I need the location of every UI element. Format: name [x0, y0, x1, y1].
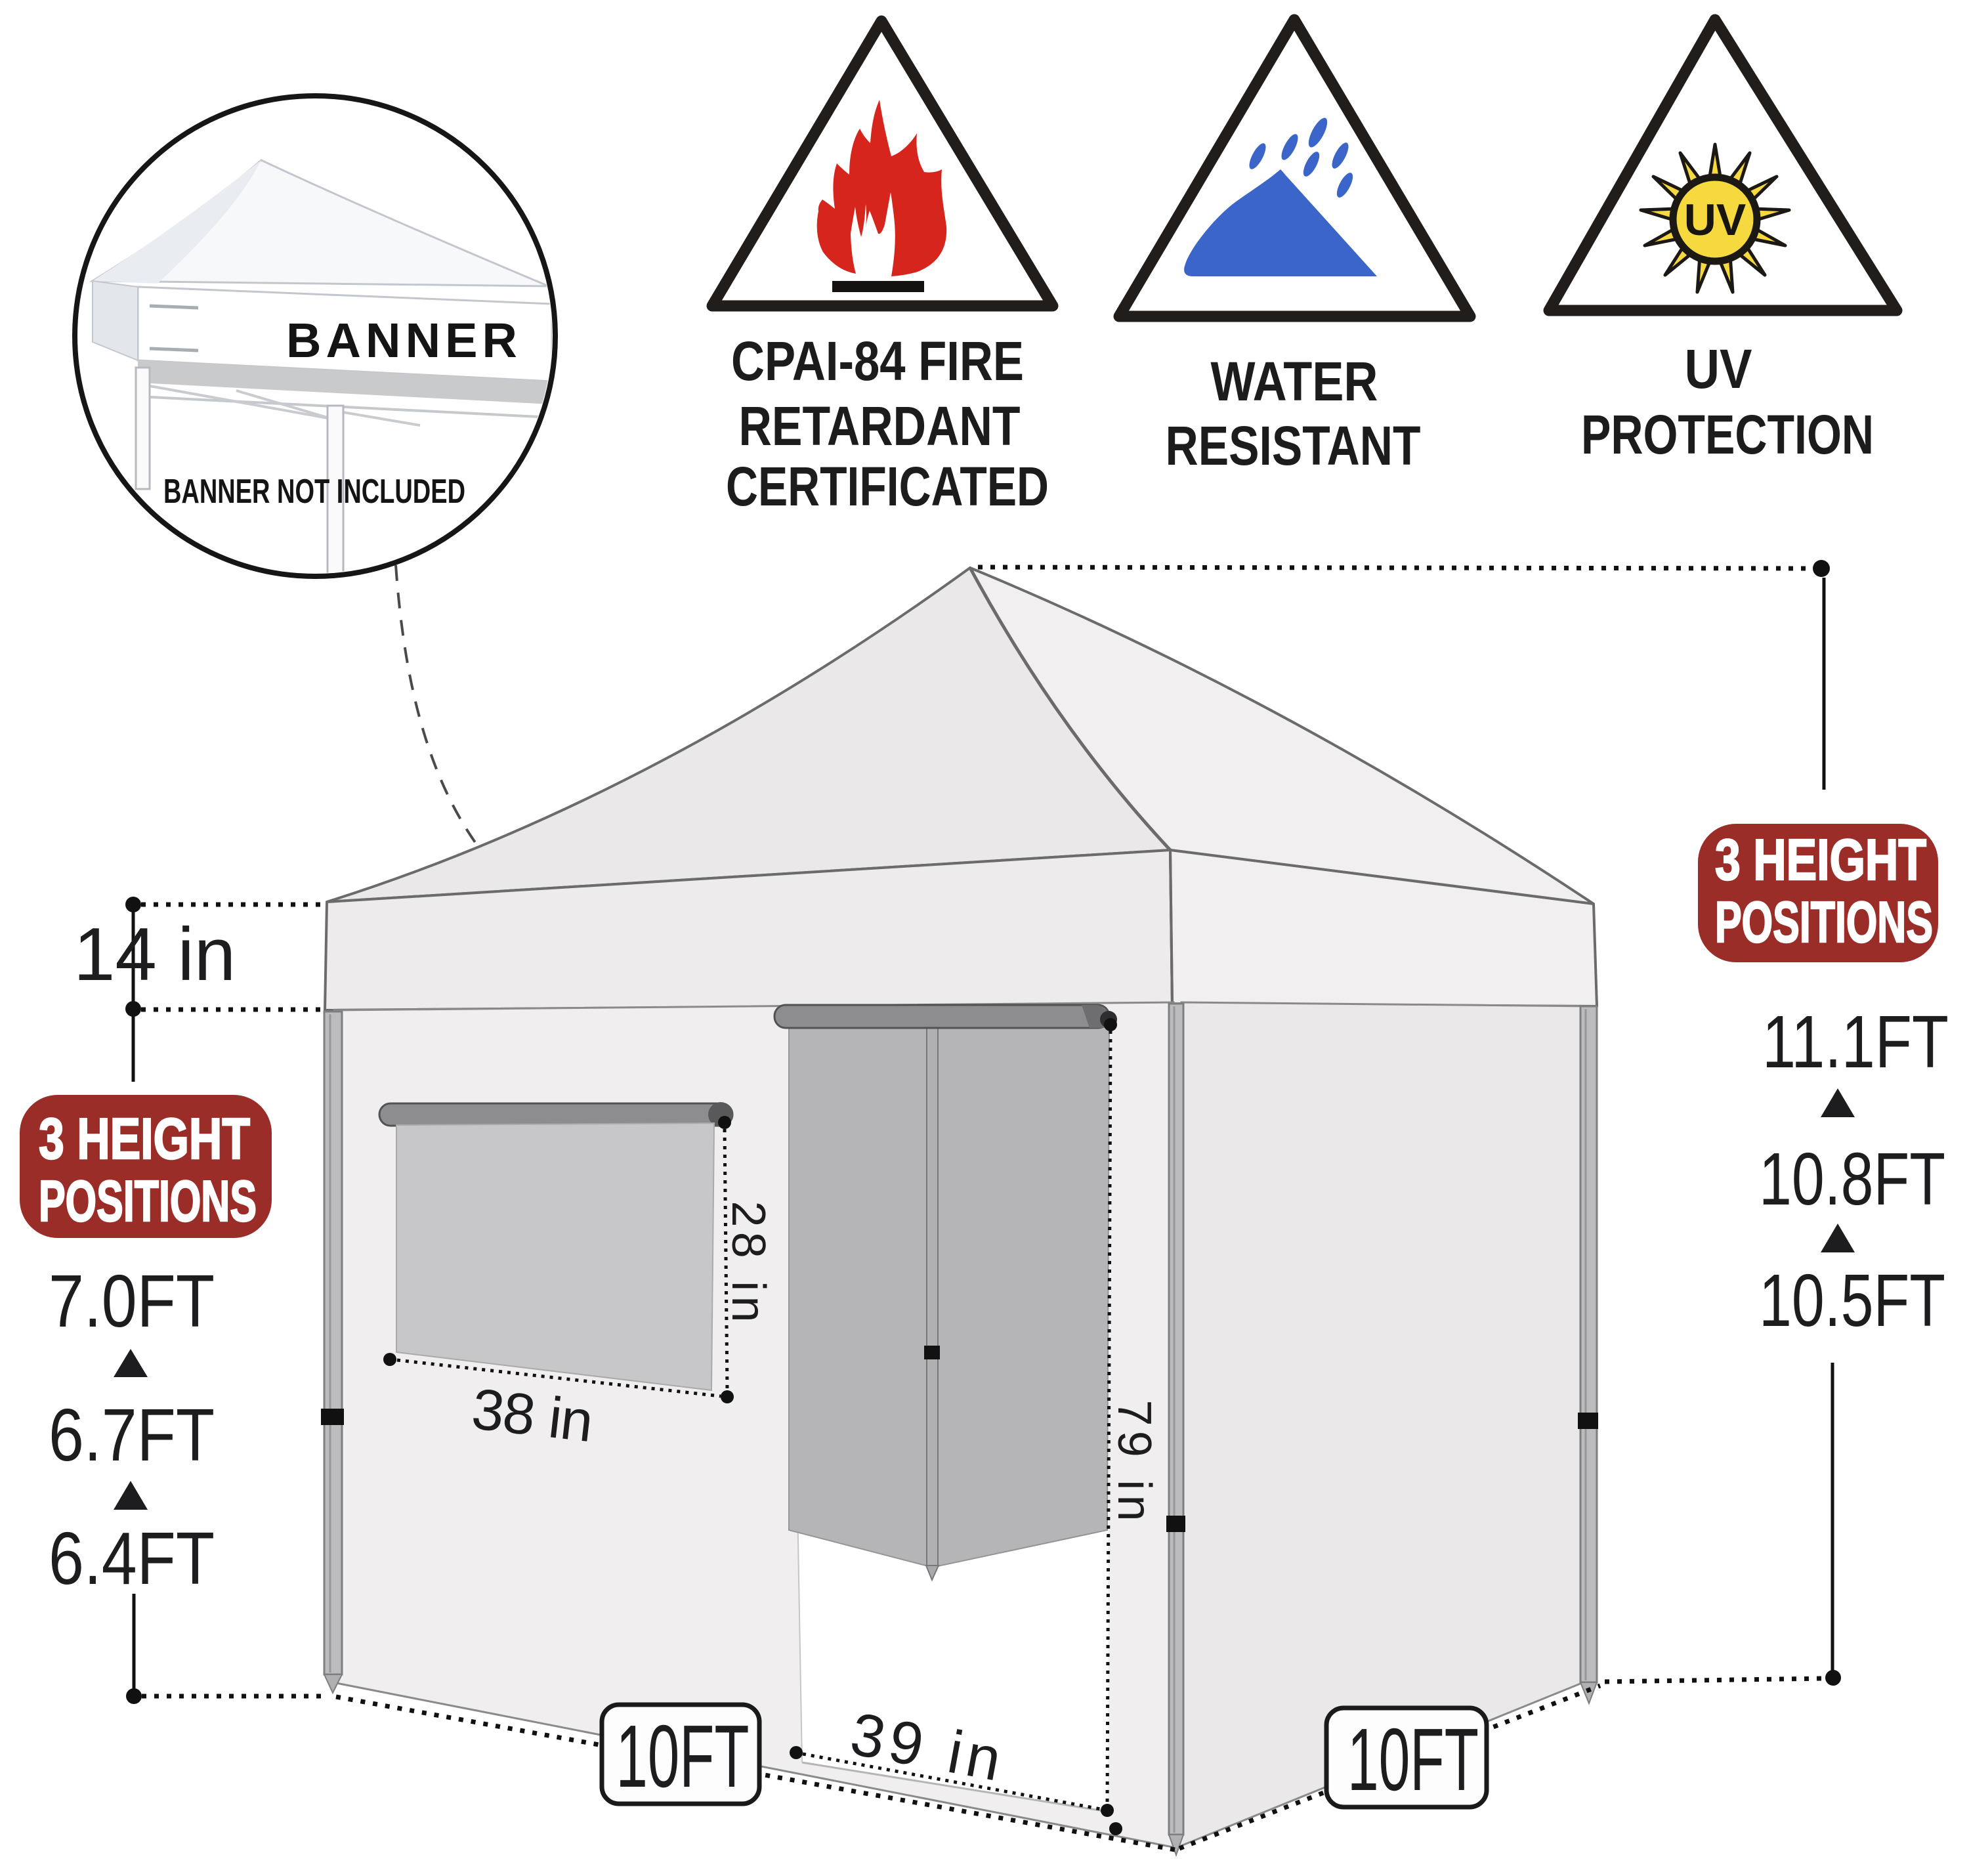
svg-text:10.8FT: 10.8FT — [1759, 1138, 1945, 1220]
svg-text:11.1FT: 11.1FT — [1762, 1000, 1949, 1083]
svg-text:UV: UV — [1685, 338, 1752, 400]
svg-text:CPAI-84 FIRE: CPAI-84 FIRE — [731, 330, 1024, 392]
svg-text:RESISTANT: RESISTANT — [1166, 415, 1421, 477]
svg-text:PROTECTION: PROTECTION — [1581, 404, 1874, 465]
svg-text:10.5FT: 10.5FT — [1759, 1259, 1945, 1342]
svg-text:10FT: 10FT — [616, 1707, 750, 1806]
svg-text:POSITIONS: POSITIONS — [1715, 889, 1933, 954]
svg-text:10FT: 10FT — [1347, 1710, 1479, 1809]
svg-text:POSITIONS: POSITIONS — [39, 1168, 257, 1233]
svg-text:BANNER NOT INCLUDED: BANNER NOT INCLUDED — [163, 473, 465, 511]
svg-text:38 in: 38 in — [469, 1376, 597, 1454]
svg-text:14 in: 14 in — [74, 913, 236, 996]
svg-text:RETARDANT: RETARDANT — [739, 395, 1021, 457]
svg-text:7.0FT: 7.0FT — [49, 1260, 215, 1342]
svg-text:6.7FT: 6.7FT — [49, 1394, 215, 1476]
svg-text:3 HEIGHT: 3 HEIGHT — [39, 1106, 250, 1171]
svg-text:BANNER: BANNER — [286, 313, 521, 368]
svg-text:6.4FT: 6.4FT — [49, 1517, 215, 1600]
svg-text:UV: UV — [1684, 195, 1746, 245]
svg-text:WATER: WATER — [1211, 351, 1378, 412]
svg-text:3 HEIGHT: 3 HEIGHT — [1715, 827, 1926, 892]
svg-text:CERTIFICATED: CERTIFICATED — [726, 456, 1049, 517]
